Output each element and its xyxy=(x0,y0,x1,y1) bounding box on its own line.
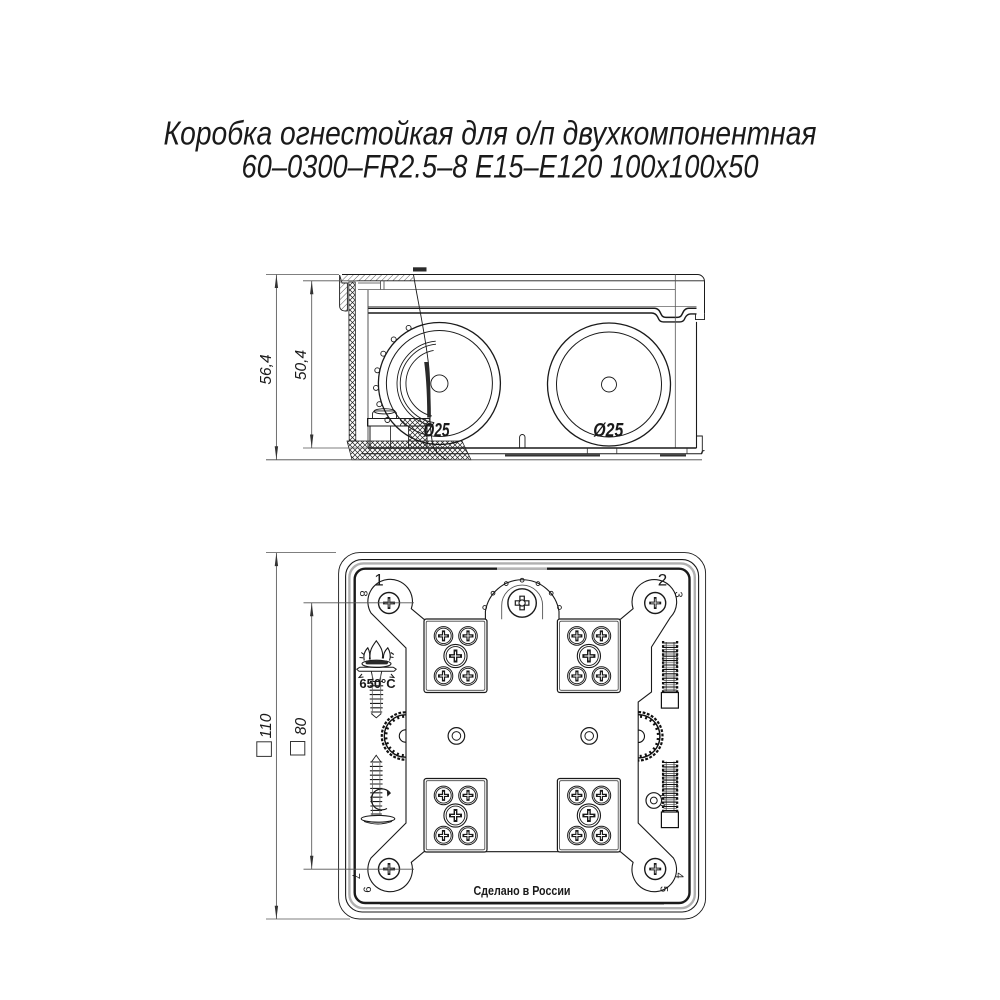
svg-text:2: 2 xyxy=(658,571,667,590)
svg-text:Ø25: Ø25 xyxy=(593,419,624,441)
svg-text:5: 5 xyxy=(658,886,670,892)
svg-text:3: 3 xyxy=(672,591,684,597)
svg-text:50,4: 50,4 xyxy=(293,350,310,381)
svg-text:Коробка огнестойкая для о/п дв: Коробка огнестойкая для о/п двухкомпонен… xyxy=(164,115,817,152)
svg-text:1: 1 xyxy=(374,571,383,590)
svg-text:56,4: 56,4 xyxy=(258,354,275,385)
svg-text:110: 110 xyxy=(258,713,275,738)
svg-text:9: 9 xyxy=(361,886,373,892)
svg-text:7: 7 xyxy=(350,873,362,879)
svg-text:Ø25: Ø25 xyxy=(424,419,451,441)
svg-text:650°С: 650°С xyxy=(359,676,396,691)
svg-text:80: 80 xyxy=(293,718,310,736)
svg-text:60–0300–FR2.5–8 Е15–Е120 100х1: 60–0300–FR2.5–8 Е15–Е120 100х100х50 xyxy=(242,149,759,185)
svg-text:4: 4 xyxy=(673,872,685,878)
svg-text:8: 8 xyxy=(357,590,369,596)
svg-text:Сделано в России: Сделано в России xyxy=(474,883,571,898)
